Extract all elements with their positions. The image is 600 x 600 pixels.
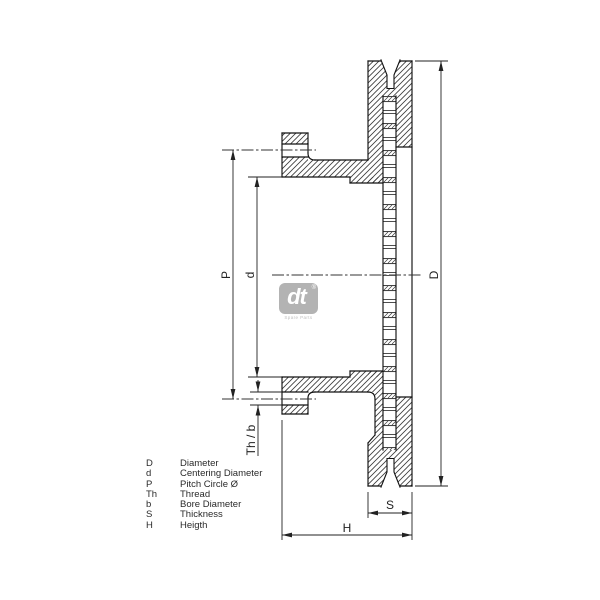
dt-logo-watermark: dt ® Spare Parts — [279, 283, 318, 320]
legend-symbol: Th — [146, 490, 180, 500]
legend-symbol: H — [146, 521, 180, 531]
notch-mouth-bottom — [382, 486, 399, 489]
technical-drawing-page: D P d Th / b S H dt ® Spare Parts DDiame… — [0, 0, 600, 600]
legend-symbol: D — [146, 459, 180, 469]
notch-mouth-top — [382, 59, 399, 62]
dimension-legend: DDiameterdCentering DiameterPPitch Circl… — [146, 459, 262, 531]
dimension-label-S: S — [386, 498, 394, 512]
dimension-label-H: H — [343, 521, 352, 535]
legend-description: Heigth — [180, 521, 207, 531]
dimension-label-D: D — [427, 270, 441, 279]
registered-trademark-icon: ® — [312, 285, 316, 291]
dimension-label-d: d — [243, 272, 257, 279]
hatched-sections — [282, 61, 412, 486]
dt-logo-box: dt ® — [279, 283, 318, 314]
dt-logo-subtext: Spare Parts — [279, 315, 318, 320]
dimension-lines — [233, 61, 448, 540]
dimension-label-Th-b: Th / b — [244, 424, 258, 455]
legend-row: HHeigth — [146, 521, 262, 531]
dt-logo-mark: dt — [279, 284, 314, 310]
dimension-label-P: P — [219, 271, 233, 279]
